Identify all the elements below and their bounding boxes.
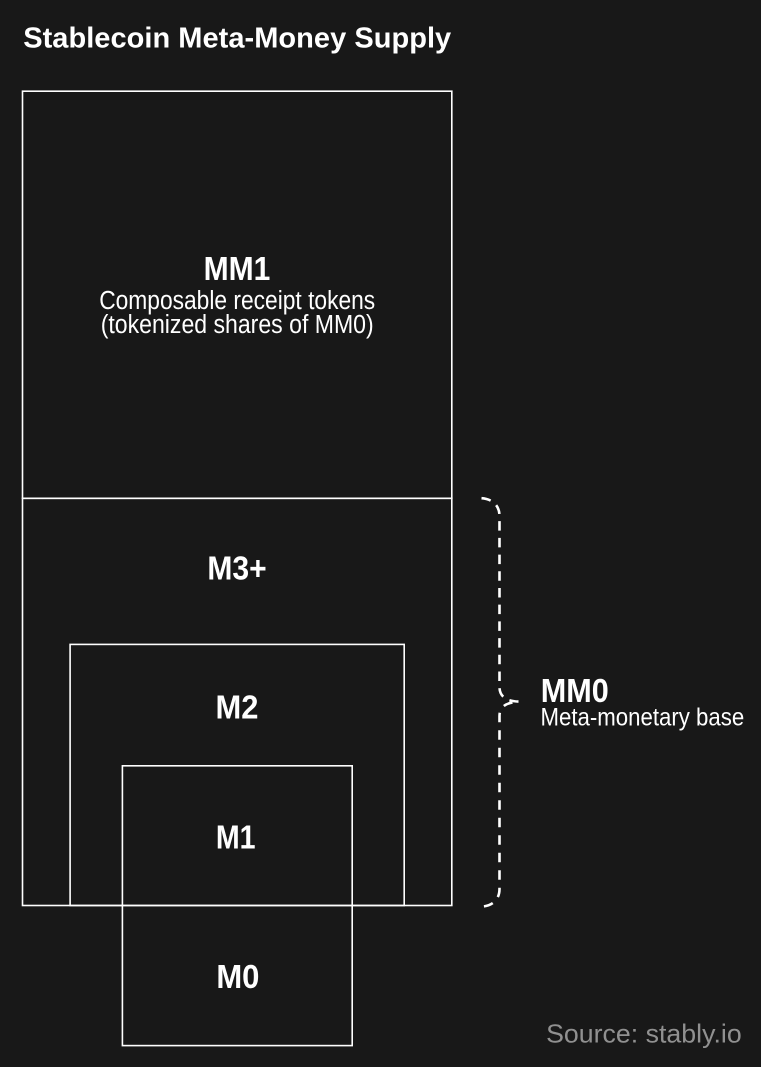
svg-text:Source: stably.io: Source: stably.io [546,1019,742,1049]
svg-text:M0: M0 [216,957,259,995]
svg-text:(tokenized shares of MM0): (tokenized shares of MM0) [101,311,374,340]
svg-text:M3+: M3+ [207,549,266,587]
svg-text:M1: M1 [216,818,256,856]
svg-text:MM1: MM1 [204,249,271,287]
svg-text:M2: M2 [216,688,259,726]
svg-text:Stablecoin Meta-Money Supply: Stablecoin Meta-Money Supply [23,22,451,54]
svg-text:Meta-monetary base: Meta-monetary base [541,703,745,731]
